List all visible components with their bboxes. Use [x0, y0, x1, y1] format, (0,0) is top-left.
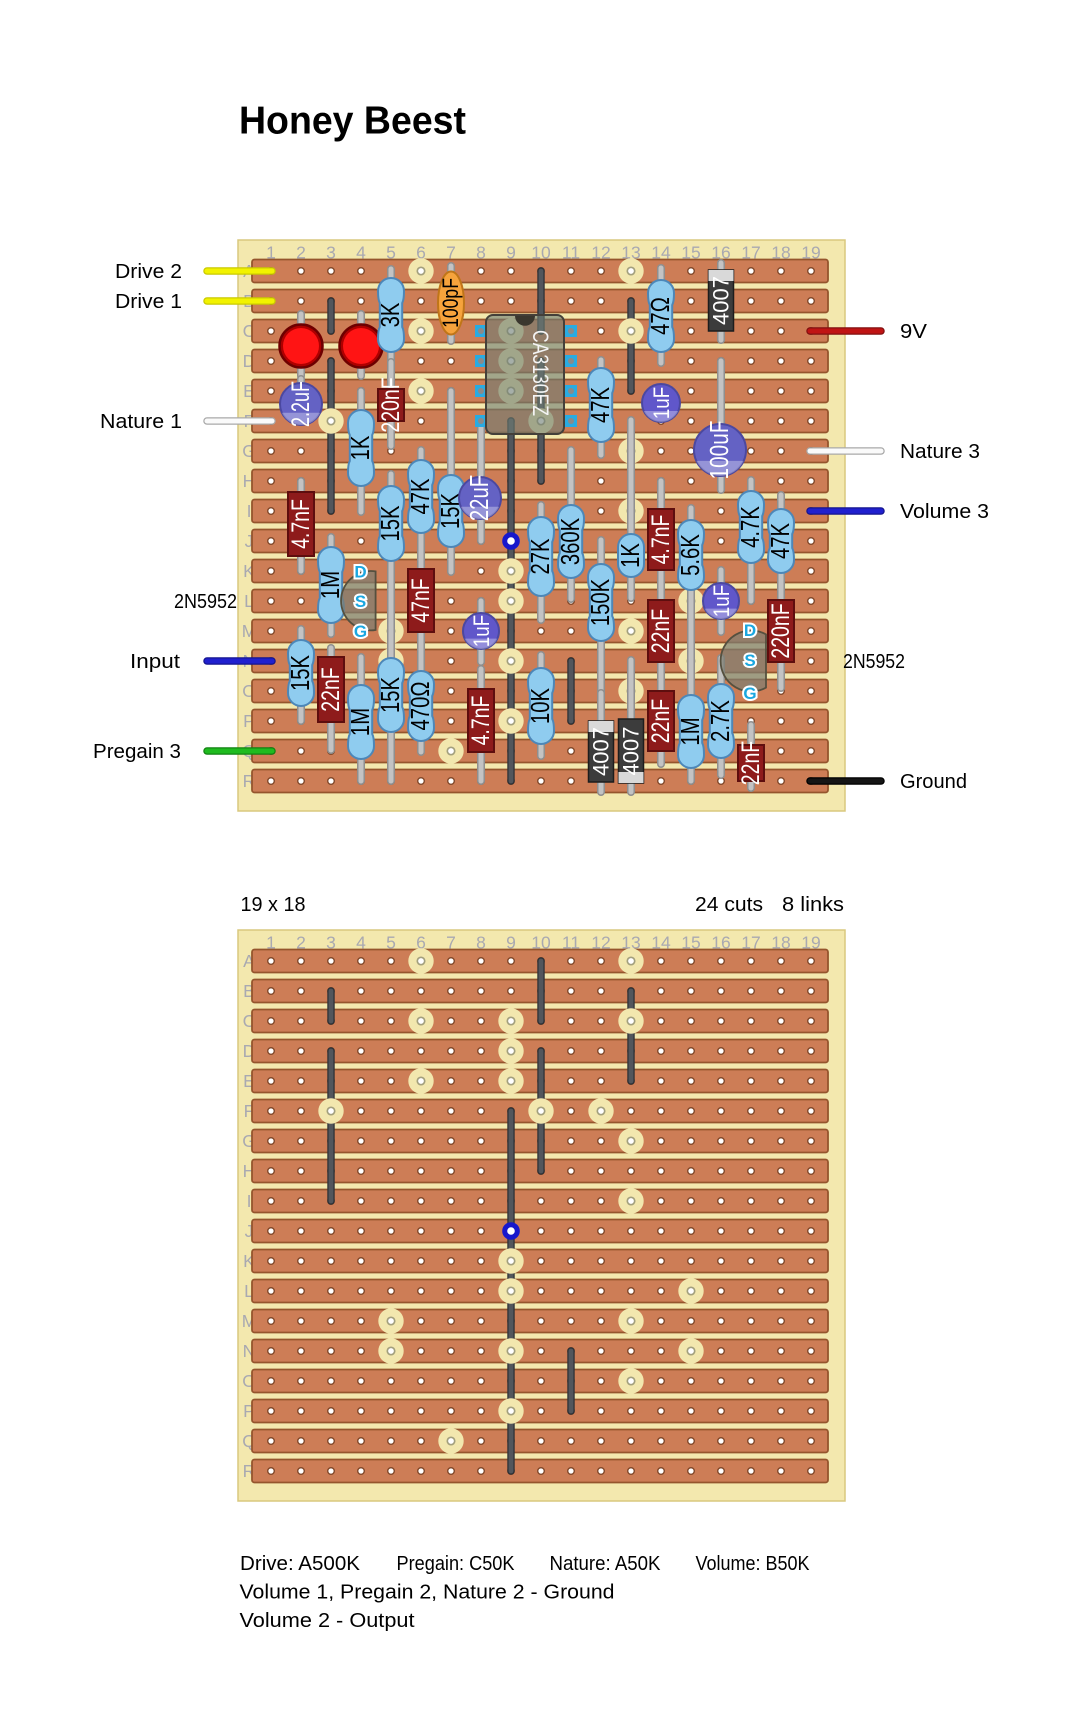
svg-text:I: I	[247, 501, 252, 521]
svg-text:Pregain 3: Pregain 3	[93, 741, 181, 763]
svg-text:S: S	[744, 651, 755, 670]
svg-text:D: D	[744, 621, 756, 640]
svg-text:4.7nF: 4.7nF	[647, 515, 675, 565]
svg-text:27K: 27K	[526, 538, 555, 574]
svg-text:Volume 2 - Output: Volume 2 - Output	[240, 1610, 415, 1632]
svg-text:47nF: 47nF	[407, 578, 435, 622]
svg-text:1K: 1K	[346, 435, 375, 460]
svg-text:Nature 1: Nature 1	[100, 411, 182, 433]
svg-text:Input: Input	[130, 651, 180, 673]
svg-text:4.7K: 4.7K	[736, 506, 765, 548]
svg-text:Volume 1, Pregain 2, Nature 2: Volume 1, Pregain 2, Nature 2 - Ground	[240, 1582, 615, 1604]
svg-text:470Ω: 470Ω	[406, 682, 435, 731]
svg-text:100pF: 100pF	[439, 278, 463, 328]
svg-text:1M: 1M	[346, 708, 375, 736]
svg-text:47K: 47K	[766, 523, 795, 559]
svg-text:1M: 1M	[676, 717, 705, 745]
svg-text:Nature: A50K: Nature: A50K	[550, 1553, 662, 1575]
svg-text:5.6K: 5.6K	[676, 534, 705, 576]
svg-text:S: S	[355, 592, 366, 611]
svg-text:10K: 10K	[526, 688, 555, 724]
svg-text:19 x 18: 19 x 18	[241, 894, 306, 916]
svg-text:4007: 4007	[619, 727, 644, 776]
svg-text:Drive 2: Drive 2	[115, 261, 182, 283]
svg-text:47Ω: 47Ω	[646, 297, 675, 335]
svg-text:I: I	[247, 1191, 252, 1211]
svg-text:4.7nF: 4.7nF	[287, 499, 315, 549]
svg-text:47K: 47K	[406, 478, 435, 514]
svg-text:24 cuts: 24 cuts	[695, 894, 763, 916]
svg-text:Drive: A500K: Drive: A500K	[240, 1553, 361, 1575]
svg-text:Volume: B50K: Volume: B50K	[696, 1553, 811, 1575]
svg-text:15K: 15K	[286, 655, 315, 691]
svg-text:22nF: 22nF	[737, 741, 765, 785]
svg-text:1K: 1K	[616, 543, 645, 568]
svg-text:22nF: 22nF	[317, 667, 345, 711]
svg-text:2.2uF: 2.2uF	[286, 381, 315, 427]
svg-text:22nF: 22nF	[647, 609, 675, 653]
svg-text:22nF: 22nF	[647, 699, 675, 743]
svg-text:Ground: Ground	[900, 771, 967, 793]
svg-text:1M: 1M	[316, 571, 345, 599]
svg-text:CA3130EZ: CA3130EZ	[527, 330, 551, 416]
svg-text:15K: 15K	[376, 505, 405, 541]
svg-text:15K: 15K	[376, 677, 405, 713]
svg-text:Volume 3: Volume 3	[900, 501, 989, 523]
svg-text:360K: 360K	[556, 517, 585, 565]
svg-text:Pregain: C50K: Pregain: C50K	[397, 1553, 516, 1575]
svg-text:D: D	[354, 563, 366, 582]
svg-text:Nature 3: Nature 3	[900, 441, 980, 463]
svg-text:2N5952: 2N5952	[843, 651, 905, 673]
svg-text:1uF: 1uF	[711, 585, 735, 617]
svg-text:47K: 47K	[586, 387, 615, 423]
svg-text:220nF: 220nF	[377, 377, 405, 432]
svg-text:2.7K: 2.7K	[706, 700, 735, 742]
svg-text:8 links: 8 links	[782, 894, 844, 916]
svg-text:150K: 150K	[586, 578, 615, 626]
svg-text:G: G	[354, 622, 367, 641]
svg-text:4007: 4007	[709, 276, 734, 325]
svg-text:2N5952: 2N5952	[174, 591, 237, 613]
svg-text:3K: 3K	[376, 302, 405, 327]
svg-text:G: G	[743, 684, 756, 703]
svg-text:Honey Beest: Honey Beest	[239, 100, 466, 143]
svg-text:4.7nF: 4.7nF	[467, 696, 495, 746]
svg-text:22uF: 22uF	[465, 475, 494, 521]
svg-text:220nF: 220nF	[767, 603, 795, 658]
svg-text:100uF: 100uF	[705, 421, 734, 480]
svg-text:9V: 9V	[900, 321, 928, 343]
svg-text:1uF: 1uF	[471, 615, 495, 647]
svg-text:1uF: 1uF	[651, 387, 675, 419]
svg-text:4007: 4007	[589, 727, 614, 776]
svg-text:Drive 1: Drive 1	[115, 291, 182, 313]
